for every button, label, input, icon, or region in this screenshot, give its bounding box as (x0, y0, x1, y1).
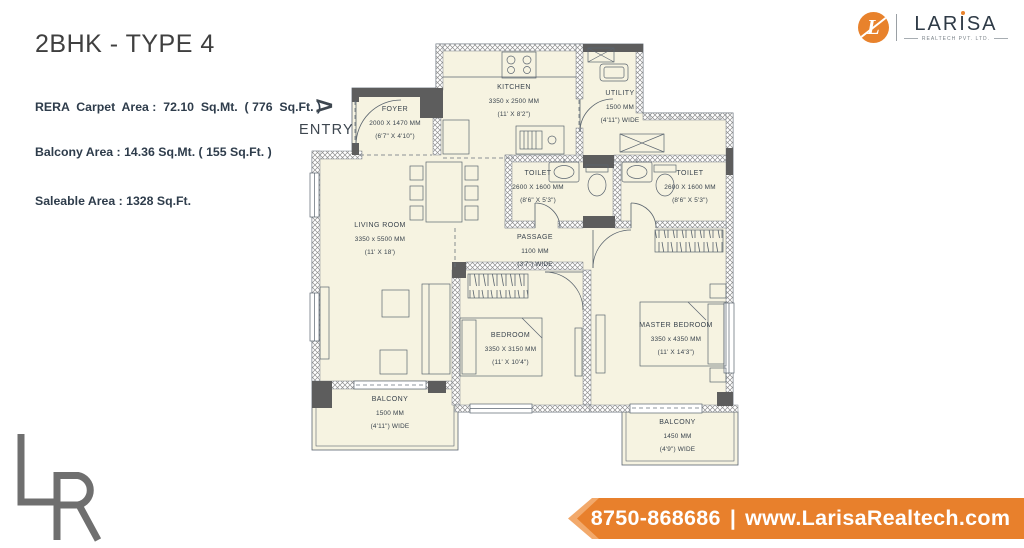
room-label-bedroom: BEDROOM3350 X 3150 MM(11' X 10'4") (468, 332, 553, 373)
room-label-kitchen: KITCHEN3350 x 2500 MM(11' X 8'2") (455, 84, 573, 125)
banner-separator: | (730, 506, 736, 531)
watermark-letter-l (21, 434, 58, 502)
flyer-page: 2BHK - TYPE 4 RERA Carpet Area : 72.10 S… (0, 0, 1024, 548)
logo-circle-icon: L (858, 12, 889, 43)
watermark-letter-r (57, 472, 98, 540)
room-label-utility: UTILITY1500 MM(4'11") WIDE (585, 90, 655, 131)
contact-banner[interactable]: 8750-868686 | www.LarisaRealtech.com (568, 498, 1024, 539)
header-block: 2BHK - TYPE 4 RERA Carpet Area : 72.10 S… (35, 30, 321, 239)
room-label-master-bedroom: MASTER BEDROOM3350 x 4350 MM(11' X 14'3"… (618, 322, 734, 363)
logo-divider (896, 14, 897, 41)
page-title: 2BHK - TYPE 4 (35, 30, 321, 59)
room-label-toilet-1: TOILET2600 X 1600 MM(8'6" X 5'3") (504, 170, 572, 211)
room-label-toilet-2: TOILET2600 X 1600 MM(8'6" X 5'3") (652, 170, 728, 211)
lr-watermark (8, 430, 120, 544)
logo-tagline: REALTECH PVT. LTD. (904, 36, 1008, 42)
bedroom-wardrobe-icon (468, 274, 528, 298)
saleable-area-line: Saleable Area : 1328 Sq.Ft. (35, 194, 321, 209)
larisa-logo: L LARISA REALTECH PVT. LTD. (858, 12, 1008, 43)
room-label-balcony-left: BALCONY1500 MM(4'11") WIDE (330, 396, 450, 437)
balcony-area-line: Balcony Area : 14.36 Sq.Mt. ( 155 Sq.Ft.… (35, 145, 321, 160)
room-label-living-room: LIVING ROOM3350 x 5500 MM(11' X 18') (320, 222, 440, 263)
rera-carpet-area-line: RERA Carpet Area : 72.10 Sq.Mt. ( 776 Sq… (35, 100, 321, 115)
room-label-foyer: FOYER2000 X 1470 MM(6'7" X 4'10") (352, 106, 438, 147)
logo-wordmark: LARISA (914, 14, 997, 34)
master-wardrobe-icon (655, 230, 723, 252)
website-url: www.LarisaRealtech.com (745, 506, 1010, 531)
room-label-passage: PASSAGE1100 MM(3'7") WIDE (500, 234, 570, 275)
room-label-balcony-right: BALCONY1450 MM(4'9") WIDE (620, 419, 735, 460)
phone-number: 8750-868686 (591, 506, 721, 531)
